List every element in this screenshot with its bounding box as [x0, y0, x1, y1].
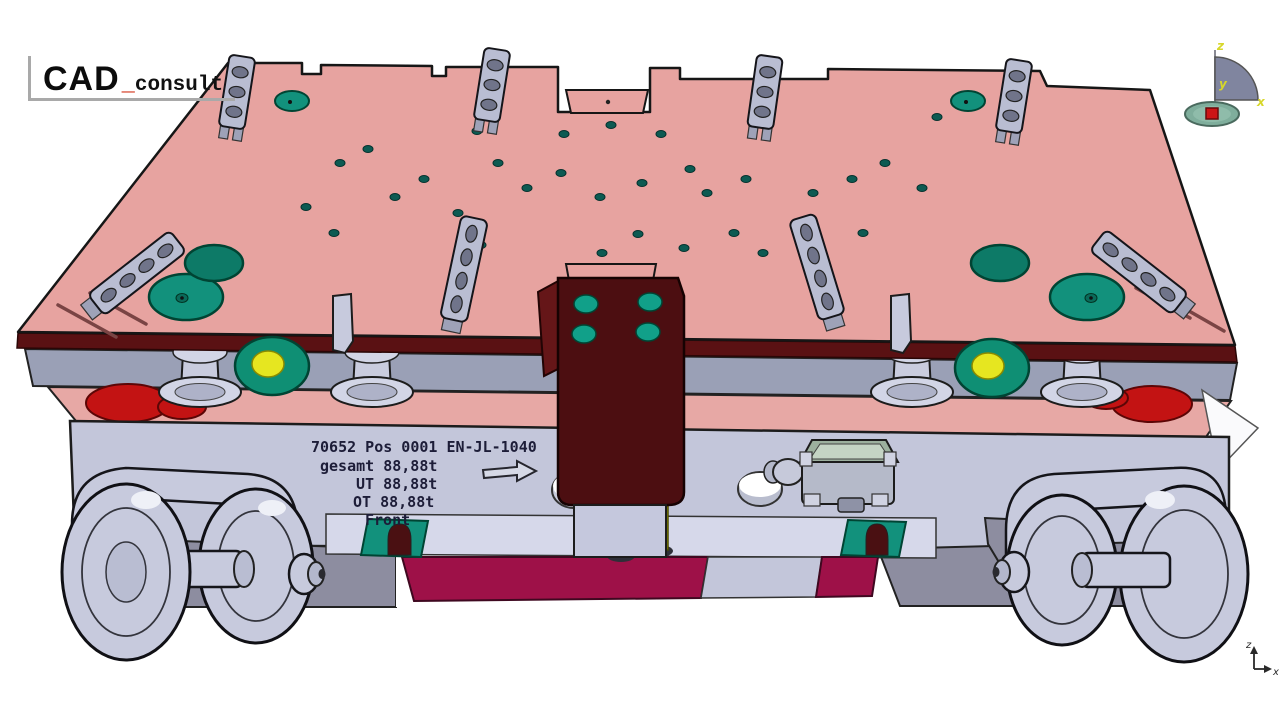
logo-underscore: _: [122, 74, 135, 96]
die-number-text: 70652 Pos 0001 EN-JL-1040: [311, 438, 537, 456]
triad-z-label: z: [1245, 640, 1252, 651]
cad-application-window: CAD _ consult: [0, 0, 1280, 720]
die-front-text: Front: [365, 511, 410, 529]
crimson-strip-right: [816, 557, 878, 597]
wheel-assembly-right: [993, 468, 1249, 662]
locator-disc-left: [235, 337, 309, 395]
die-weight-total-text: gesamt 88,88t: [320, 457, 437, 475]
compass-x-label: x: [1256, 95, 1266, 109]
logo-suffix-text: consult: [135, 75, 223, 96]
cad-3d-viewport[interactable]: 70652 Pos 0001 EN-JL-1040 gesamt 88,88t …: [0, 0, 1280, 720]
view-compass[interactable]: z y x: [1185, 39, 1266, 126]
triad-x-label: x: [1272, 667, 1279, 678]
keyhole-block-right: [841, 520, 906, 557]
compass-z-label: z: [1216, 39, 1225, 53]
compass-y-label: y: [1219, 77, 1228, 91]
cad-consult-logo: CAD _ consult: [28, 56, 235, 101]
top-notch-ledge: [566, 90, 648, 113]
wheel-assembly-left: [62, 468, 326, 660]
crimson-strip-left: [402, 557, 708, 601]
logo-brand-text: CAD: [43, 62, 120, 96]
die-weight-ot-text: OT 88,88t: [353, 493, 434, 511]
axis-triad: z x: [1245, 640, 1279, 678]
crimson-strip-spacer: [701, 557, 822, 598]
die-weight-ut-text: UT 88,88t: [356, 475, 437, 493]
locator-disc-right: [955, 339, 1029, 397]
compass-anchor-square[interactable]: [1206, 108, 1218, 119]
